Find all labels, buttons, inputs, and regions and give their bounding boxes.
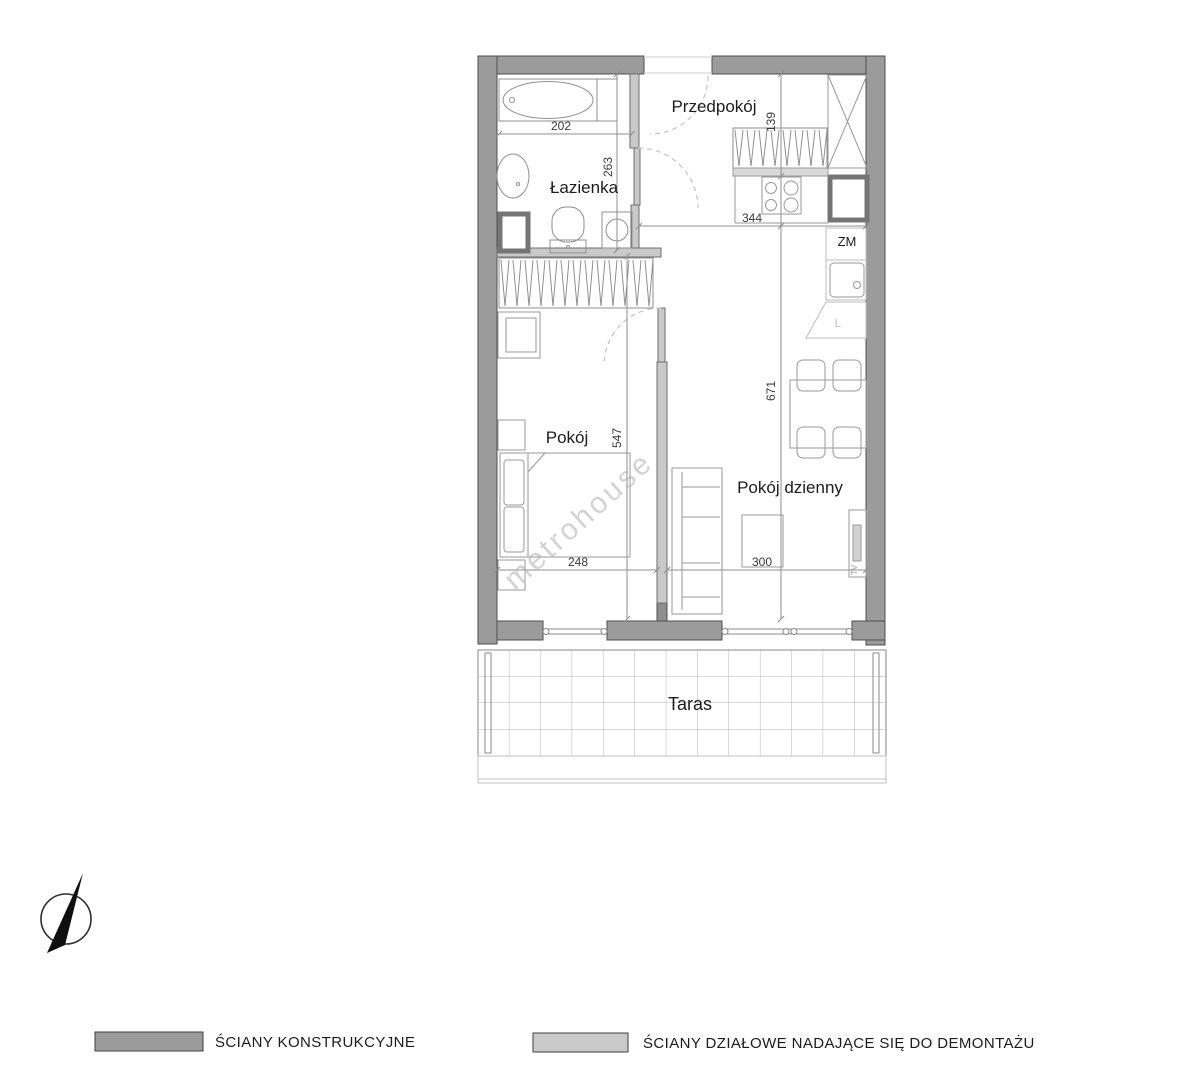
chair (833, 427, 861, 458)
dim-671: 671 (764, 381, 778, 401)
dining-table (790, 380, 866, 448)
burner (784, 198, 798, 212)
sofa (672, 468, 722, 614)
bathroom-shaft (500, 214, 528, 251)
washbasin-drain (517, 183, 520, 186)
legend-label-partition: ŚCIANY DZIAŁOWE NADAJĄCE SIĘ DO DEMONTAŻ… (643, 1034, 1035, 1052)
wall-partition-cap (657, 603, 667, 621)
burner (766, 183, 777, 194)
legend-swatch-structural (95, 1032, 203, 1051)
room-label-bathroom: Łazienka (550, 178, 619, 197)
dim-263: 263 (601, 157, 615, 177)
chair (797, 427, 825, 458)
kitchen-shaft (830, 177, 867, 220)
dim-248: 248 (568, 555, 588, 569)
dim-547: 547 (610, 428, 624, 448)
sofa-cushions (682, 472, 720, 610)
north-arrow (41, 873, 91, 953)
armchair (498, 312, 540, 358)
watermark: metrohouse (498, 446, 660, 597)
chair (797, 360, 825, 391)
bathtub-faucet (510, 98, 515, 103)
tv-screen (853, 525, 861, 561)
bedroom-door-arc (604, 308, 661, 365)
partition-bath-hall-upper (630, 74, 639, 148)
toilet-bowl (552, 207, 584, 242)
kitchen-sink-drain (854, 282, 861, 289)
wall-left (478, 56, 497, 644)
label-tv: TV (850, 564, 859, 575)
burner (784, 181, 798, 195)
room-label-terrace: Taras (668, 694, 712, 714)
legend-label-structural: ŚCIANY KONSTRUKCYJNE (215, 1033, 415, 1051)
kitchen-sink (830, 263, 864, 297)
washbasin (497, 154, 529, 198)
terrace (478, 650, 886, 783)
legend-swatch-partition (533, 1033, 628, 1052)
floor-plan-canvas: 202 263 139 344 671 547 248 300 Przedpok… (0, 0, 1186, 1080)
wall-bottom-pier-left (497, 621, 543, 640)
toilet-button (567, 246, 570, 249)
bathroom-door-arc (638, 148, 698, 208)
hall-wardrobe (733, 128, 827, 168)
window-hinge (543, 629, 549, 635)
armchair-seat (506, 318, 536, 352)
window-hinge (722, 629, 728, 635)
room-label-living-room: Pokój dzienny (737, 478, 843, 497)
wall-bottom-pier-center (607, 621, 722, 640)
partition-bedroom-living (657, 362, 667, 603)
burner (766, 200, 777, 211)
kitchen-fixtures (733, 75, 867, 458)
bedroom-door-leaf (658, 308, 665, 362)
label-dishwasher: ZM (838, 234, 857, 249)
pillow-top (504, 460, 524, 505)
wall-right (866, 56, 885, 645)
bathroom-door-leaf (634, 148, 640, 205)
room-label-bedroom: Pokój (546, 428, 589, 447)
window-hinge (846, 629, 852, 635)
dim-344: 344 (742, 211, 762, 225)
chair (833, 360, 861, 391)
pillow-bottom (504, 507, 524, 552)
legend: ŚCIANY KONSTRUKCYJNE ŚCIANY DZIAŁOWE NAD… (95, 1032, 1035, 1052)
nightstand-top (498, 420, 525, 450)
dim-202: 202 (551, 119, 571, 133)
bedroom-wardrobe (499, 258, 653, 308)
bathtub (499, 79, 597, 121)
window-hinge (601, 629, 607, 635)
floor-plan-page: 202 263 139 344 671 547 248 300 Przedpok… (0, 0, 1186, 1080)
wall-bottom-pier-right (852, 621, 885, 640)
label-fridge: L (835, 316, 842, 330)
bedroom-window (543, 629, 607, 634)
wall-top-right (712, 56, 885, 74)
room-label-hall: Przedpokój (671, 97, 756, 116)
tall-cabinet-cross (828, 75, 867, 168)
dim-139: 139 (764, 112, 778, 132)
entrance-threshold (644, 57, 712, 73)
window-hinge (791, 629, 797, 635)
window-hinge (783, 629, 789, 635)
bathtub-shelf (597, 79, 617, 121)
sink-cell (826, 260, 866, 300)
bathtub-basin (503, 82, 593, 119)
dim-300: 300 (752, 555, 772, 569)
